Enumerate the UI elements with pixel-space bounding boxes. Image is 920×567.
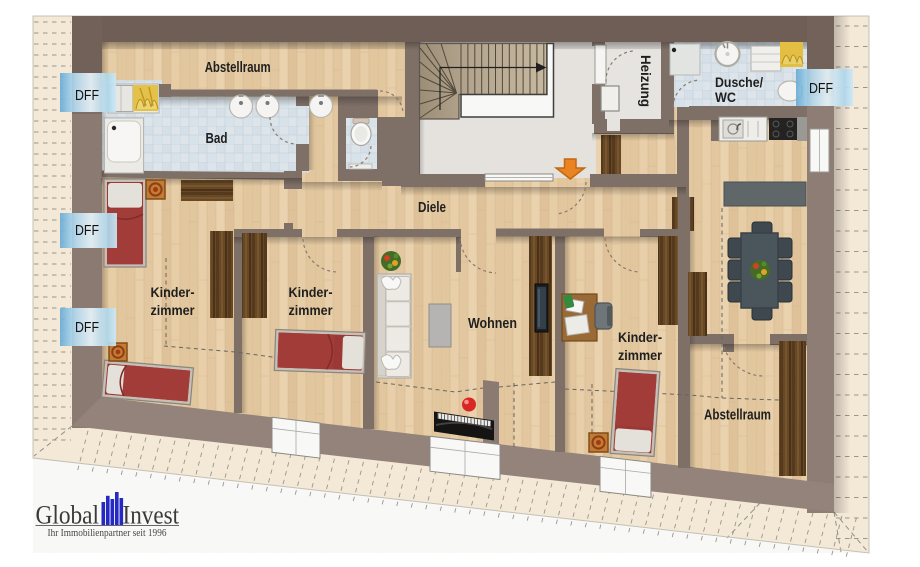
- svg-text:Abstellraum: Abstellraum: [205, 59, 271, 76]
- svg-text:Abstellraum: Abstellraum: [704, 407, 771, 424]
- svg-text:Diele: Diele: [418, 199, 446, 216]
- svg-text:zimmer: zimmer: [151, 302, 195, 318]
- svg-text:zimmer: zimmer: [289, 302, 333, 318]
- svg-text:Kinder-: Kinder-: [289, 284, 333, 300]
- svg-text:DFF: DFF: [75, 223, 99, 239]
- svg-text:Kinder-: Kinder-: [618, 329, 662, 345]
- svg-text:zimmer: zimmer: [618, 347, 662, 363]
- svg-text:WC: WC: [715, 89, 736, 105]
- svg-text:Ihr Immobilienpartner seit 199: Ihr Immobilienpartner seit 1996: [48, 528, 167, 539]
- svg-text:Bad: Bad: [206, 130, 228, 147]
- svg-text:DFF: DFF: [809, 81, 833, 97]
- svg-text:Kinder-: Kinder-: [151, 284, 195, 300]
- svg-text:DFF: DFF: [75, 320, 99, 336]
- svg-text:Heizung: Heizung: [638, 55, 654, 107]
- svg-text:Wohnen: Wohnen: [468, 315, 517, 332]
- svg-text:Dusche/: Dusche/: [715, 74, 763, 90]
- svg-text:DFF: DFF: [75, 88, 99, 104]
